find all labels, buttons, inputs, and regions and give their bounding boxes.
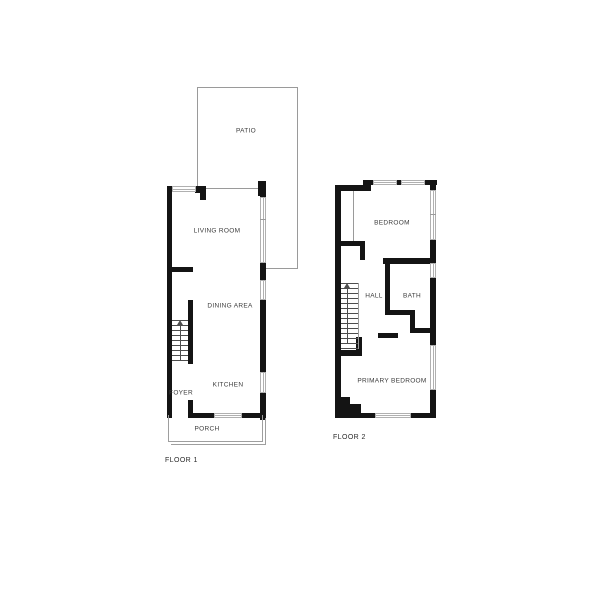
- stairs-floor2: [341, 283, 358, 349]
- window-bedroom-right: [430, 190, 436, 240]
- stairs-floor2-direction-line: [347, 289, 348, 344]
- floorplan-canvas: { "floor1": { "tag": "FLOOR 1", "patio":…: [0, 0, 600, 600]
- window-bedroom-top-right: [401, 180, 425, 185]
- wall-hall-bottom: [378, 333, 398, 338]
- closet-divider-line: [353, 191, 354, 241]
- wall-bath-left: [385, 258, 390, 315]
- wall-mass-bottom-left-upper: [335, 397, 350, 406]
- floor2-tag: FLOOR 2: [333, 434, 366, 442]
- wall-mass-bottom-left: [335, 404, 361, 418]
- floor2-plan: BEDROOM HALL BATH PRIMARY BEDROOM FLOOR …: [0, 0, 600, 600]
- window-bath-right: [430, 263, 436, 278]
- stairs-floor2-edge-line: [358, 283, 359, 349]
- wall-closet-stub-v: [360, 241, 365, 260]
- wall-bedroom-bottom: [383, 258, 436, 264]
- wall-bath-bottom: [415, 328, 436, 333]
- room-label-hall: HALL: [365, 293, 382, 300]
- window-mullion: [430, 214, 436, 215]
- room-label-bedroom: BEDROOM: [374, 220, 410, 227]
- window-bedroom-top-left: [373, 180, 397, 185]
- stairs-floor2-arrow-icon: [344, 283, 350, 288]
- wall-stair-enclosure-h: [338, 350, 362, 356]
- room-label-bath: BATH: [403, 293, 421, 300]
- window-primary-right: [430, 345, 436, 390]
- window-primary-bottom: [375, 413, 411, 418]
- room-label-primary-bedroom: PRIMARY BEDROOM: [357, 378, 426, 385]
